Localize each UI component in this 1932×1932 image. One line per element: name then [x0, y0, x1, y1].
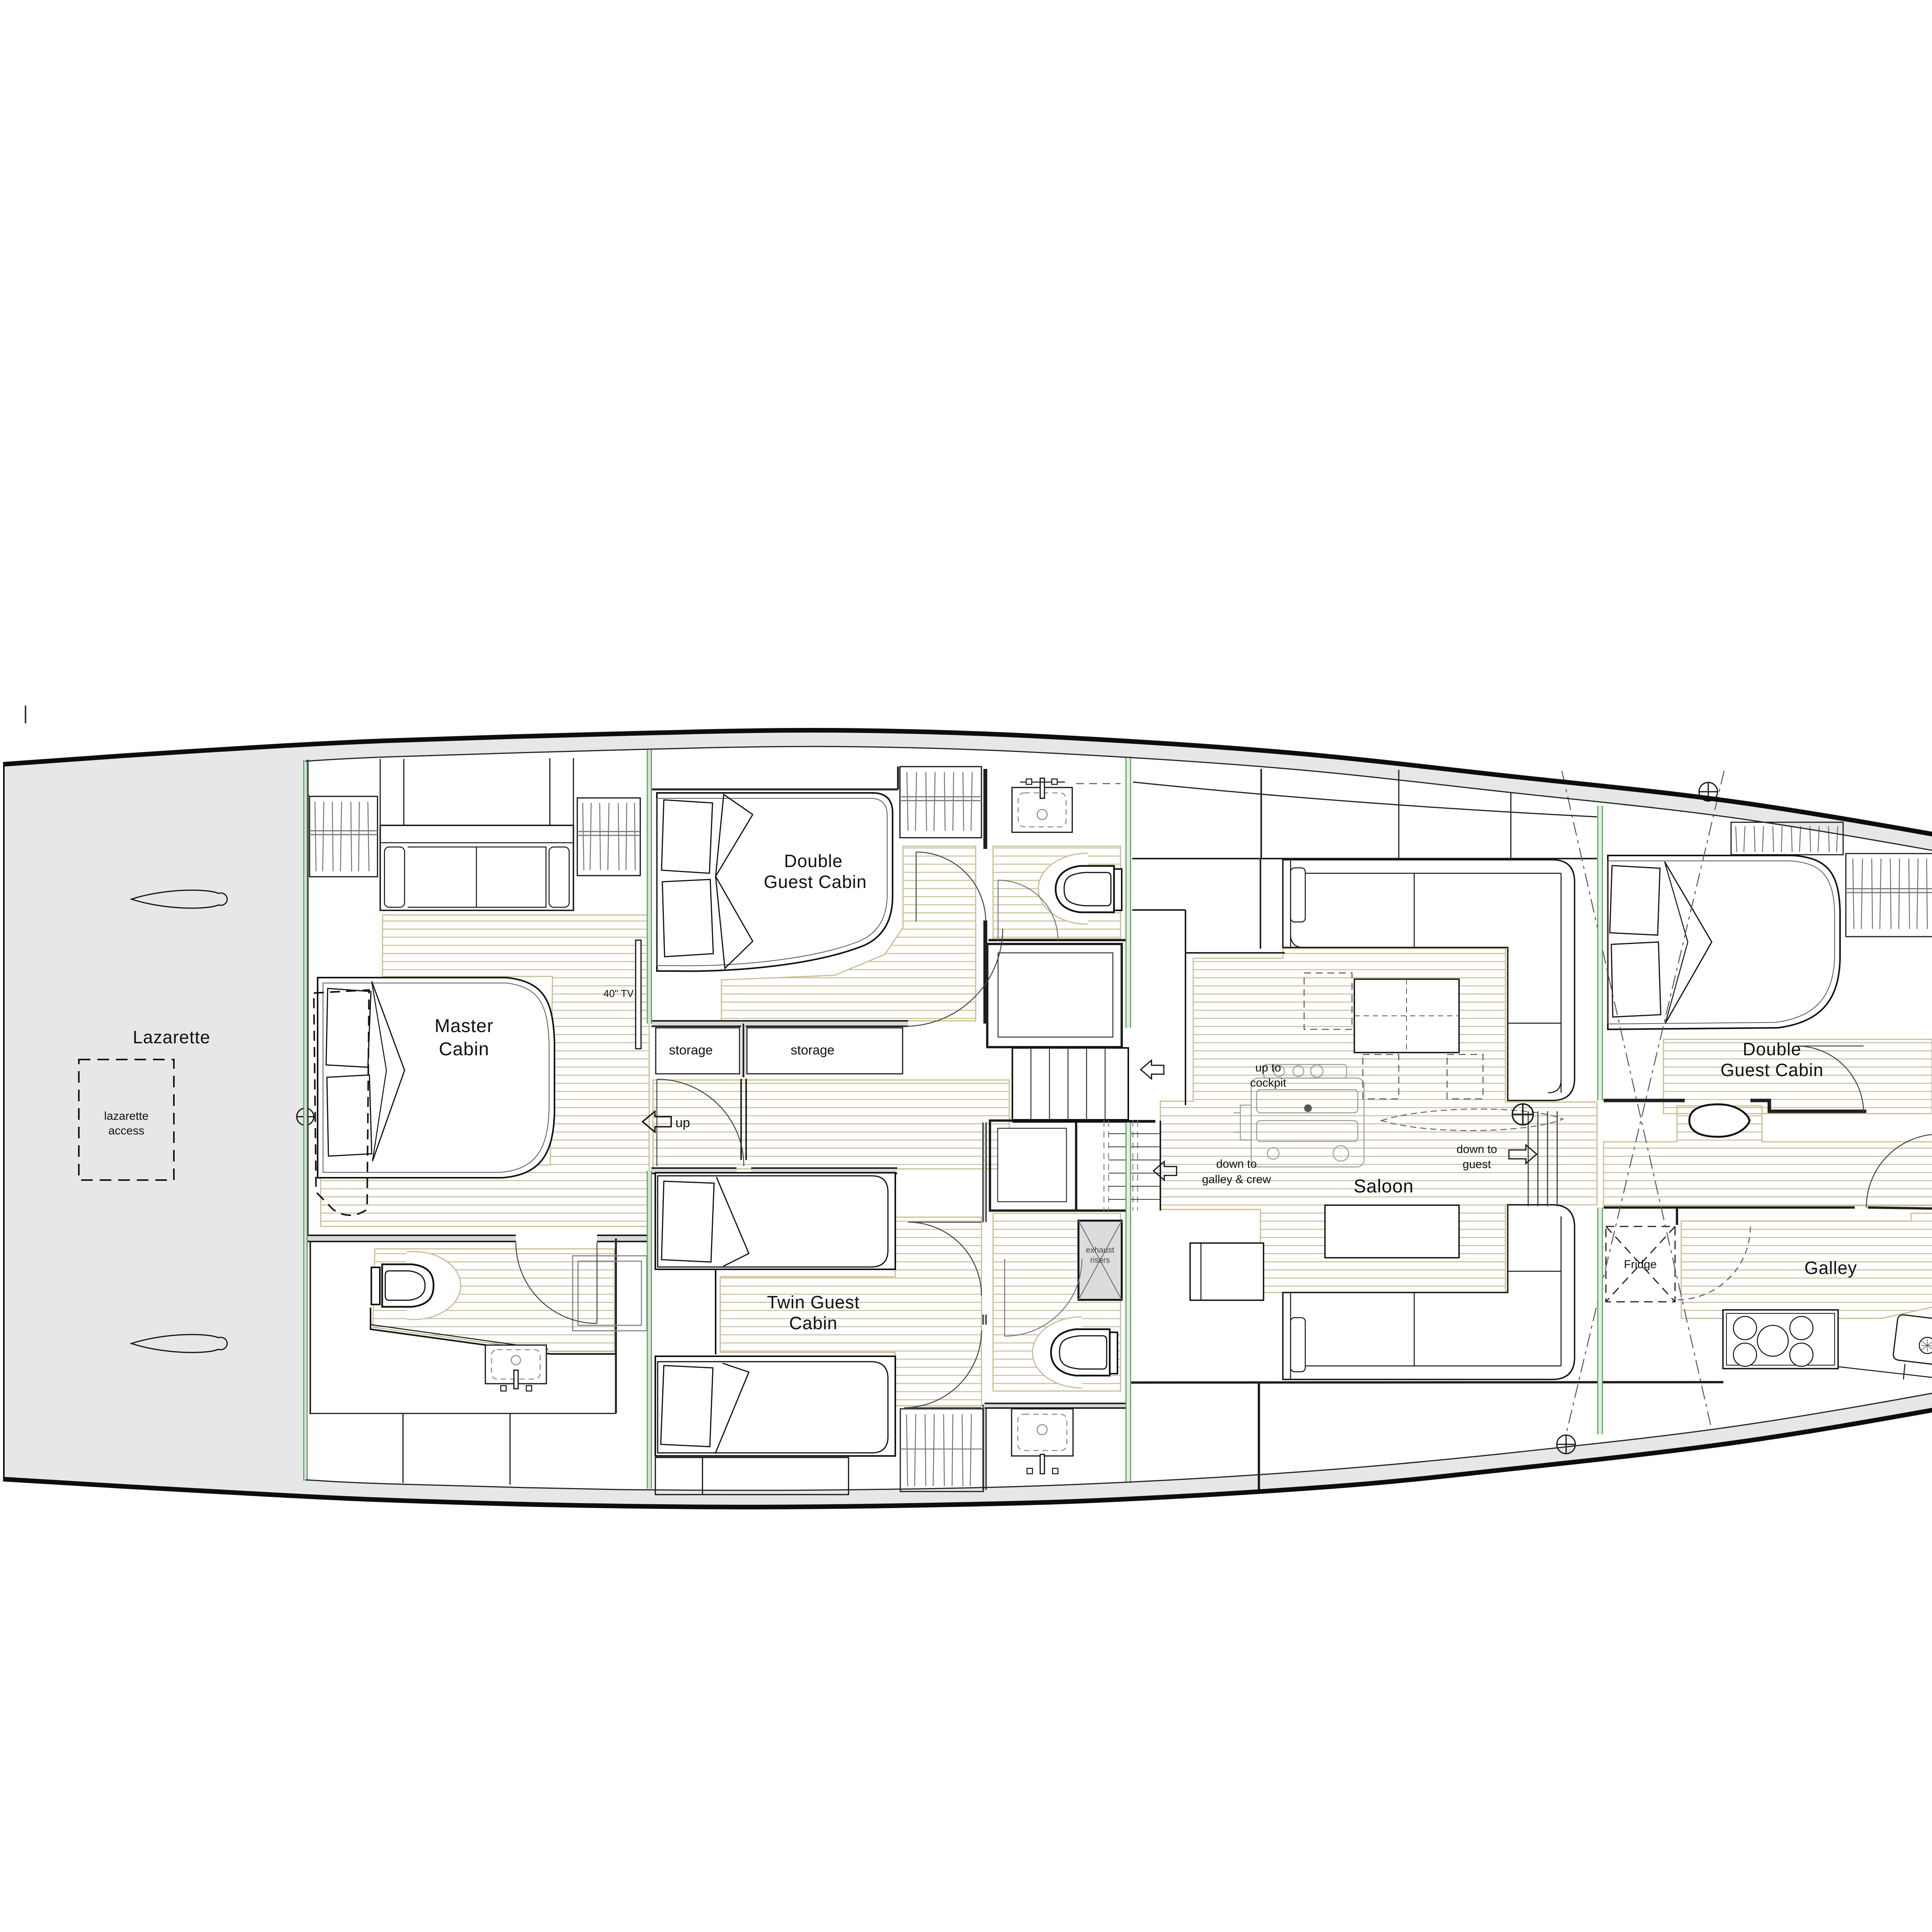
svg-text:Fridge: Fridge	[1624, 1258, 1656, 1271]
svg-text:down to: down to	[1216, 1158, 1257, 1170]
svg-text:risers: risers	[1090, 1256, 1110, 1265]
svg-text:guest: guest	[1463, 1158, 1491, 1171]
svg-text:up to: up to	[1255, 1061, 1281, 1074]
svg-text:Lazarette: Lazarette	[133, 1027, 211, 1047]
svg-text:galley & crew: galley & crew	[1202, 1173, 1271, 1186]
svg-text:storage: storage	[791, 1043, 834, 1058]
svg-text:Double: Double	[784, 851, 843, 871]
svg-text:cockpit: cockpit	[1250, 1077, 1286, 1089]
svg-text:access: access	[108, 1124, 144, 1137]
svg-text:Cabin: Cabin	[789, 1313, 837, 1333]
svg-text:down to: down to	[1456, 1143, 1497, 1156]
svg-text:Guest Cabin: Guest Cabin	[1721, 1060, 1824, 1080]
svg-text:up: up	[675, 1116, 690, 1130]
svg-text:Saloon: Saloon	[1354, 1176, 1413, 1197]
svg-text:storage: storage	[669, 1043, 713, 1058]
svg-text:Twin Guest: Twin Guest	[767, 1292, 860, 1312]
svg-text:40" TV: 40" TV	[604, 988, 634, 999]
svg-text:lazarette: lazarette	[104, 1110, 148, 1122]
svg-text:Double: Double	[1743, 1039, 1801, 1059]
svg-text:exhaust: exhaust	[1086, 1246, 1114, 1255]
svg-text:Guest Cabin: Guest Cabin	[764, 872, 867, 892]
svg-text:Cabin: Cabin	[439, 1039, 489, 1060]
svg-text:Master: Master	[435, 1016, 494, 1036]
svg-text:Galley: Galley	[1804, 1258, 1857, 1278]
